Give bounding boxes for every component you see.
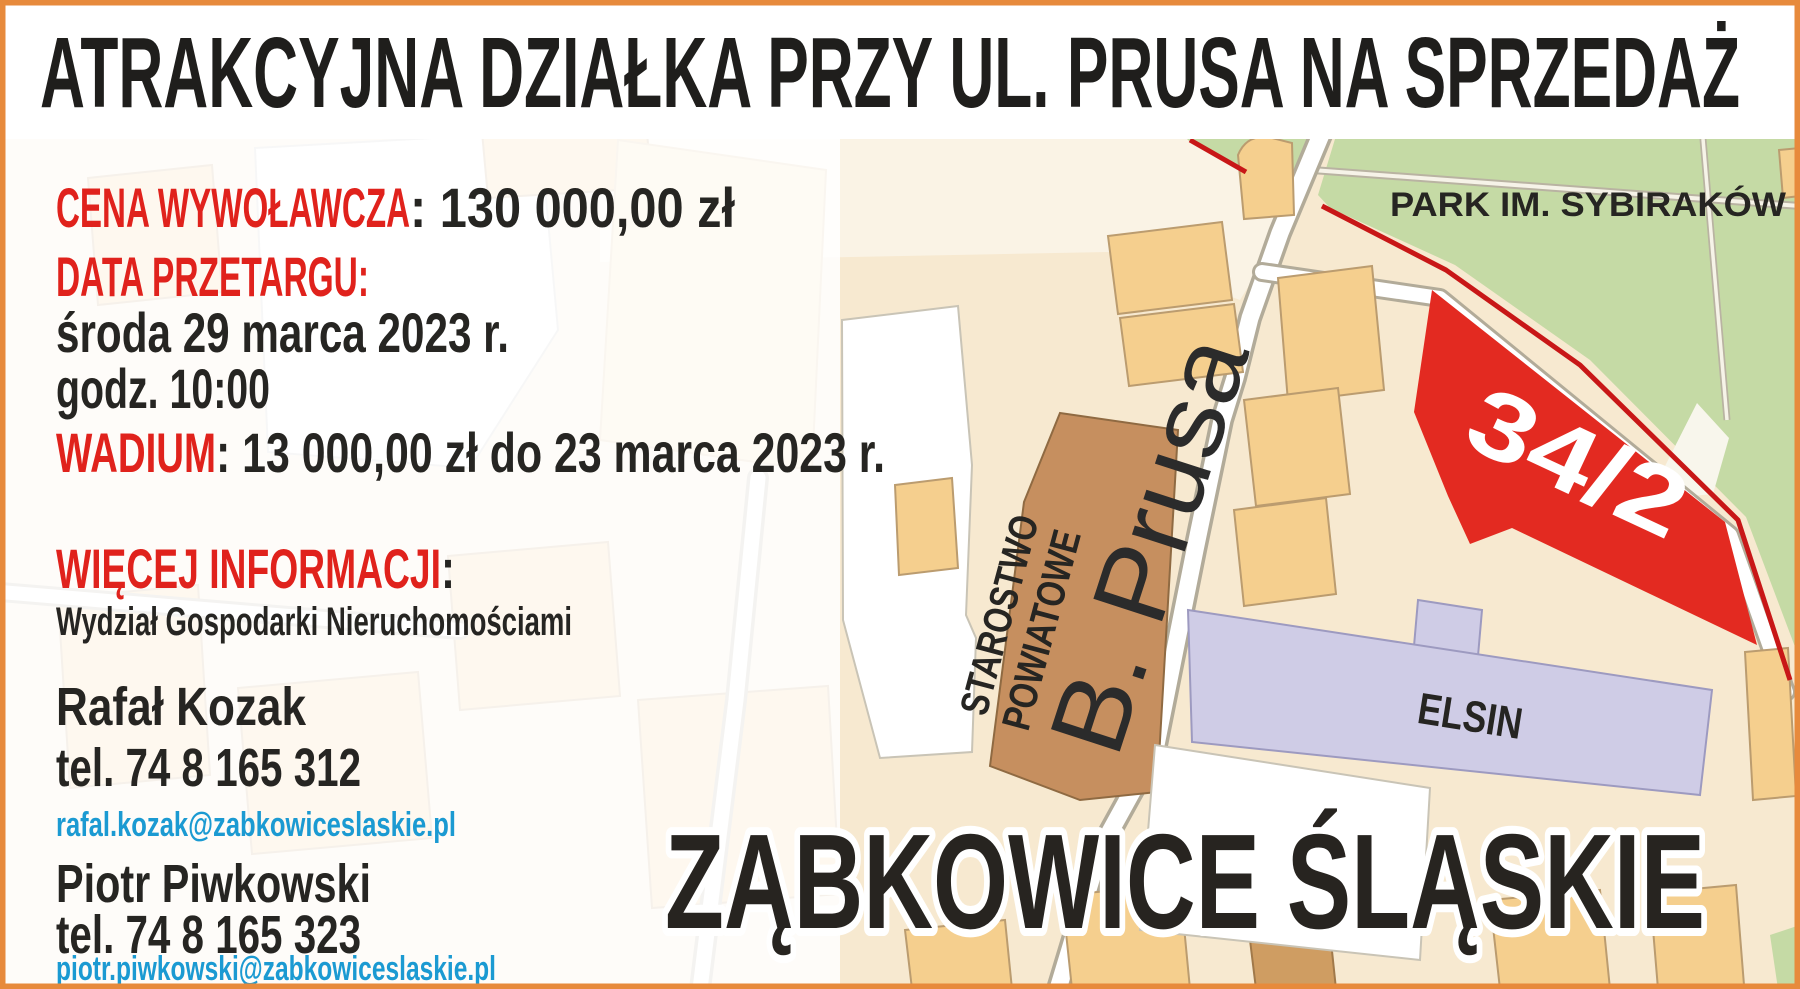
city-label: ZĄBKOWICE ŚLĄSKIE — [665, 806, 1705, 957]
wadium-label: WADIUM — [56, 421, 216, 484]
poster-canvas: PARK IM. SYBIRAKÓW 34/2 B. Prusa STAROST… — [0, 0, 1800, 989]
auction-date-label: DATA PRZETARGU: — [56, 245, 369, 308]
contact2-email: piotr.piwkowski@zabkowiceslaskie.pl — [56, 950, 496, 988]
price-value: : 130 000,00 zł — [410, 176, 735, 239]
more-info-line: WIĘCEJ INFORMACJI: — [56, 537, 455, 600]
wadium-line: WADIUM: 13 000,00 zł do 23 marca 2023 r. — [56, 421, 885, 484]
building-tan-small — [895, 478, 958, 575]
department-line: Wydział Gospodarki Nieruchomościami — [56, 600, 572, 644]
price-line: CENA WYWOŁAWCZA: 130 000,00 zł — [56, 176, 735, 239]
auction-time-value: godz. 10:00 — [56, 357, 270, 420]
auction-poster: PARK IM. SYBIRAKÓW 34/2 B. Prusa STAROST… — [0, 0, 1800, 989]
contact1-phone: tel. 74 8 165 312 — [56, 738, 361, 798]
park-label: PARK IM. SYBIRAKÓW — [1390, 186, 1787, 224]
more-info-label: WIĘCEJ INFORMACJI — [56, 537, 441, 600]
building-round-top — [1238, 137, 1294, 219]
price-label: CENA WYWOŁAWCZA — [56, 176, 410, 239]
wadium-value: : 13 000,00 zł do 23 marca 2023 r. — [216, 421, 885, 484]
poster-title: ATRAKCYJNA DZIAŁKA PRZY UL. PRUSA NA SPR… — [40, 17, 1740, 129]
more-info-colon: : — [441, 537, 455, 600]
contact1-name: Rafał Kozak — [56, 677, 307, 737]
contact1-email: rafal.kozak@zabkowiceslaskie.pl — [56, 806, 456, 844]
auction-date-value: środa 29 marca 2023 r. — [56, 301, 509, 364]
